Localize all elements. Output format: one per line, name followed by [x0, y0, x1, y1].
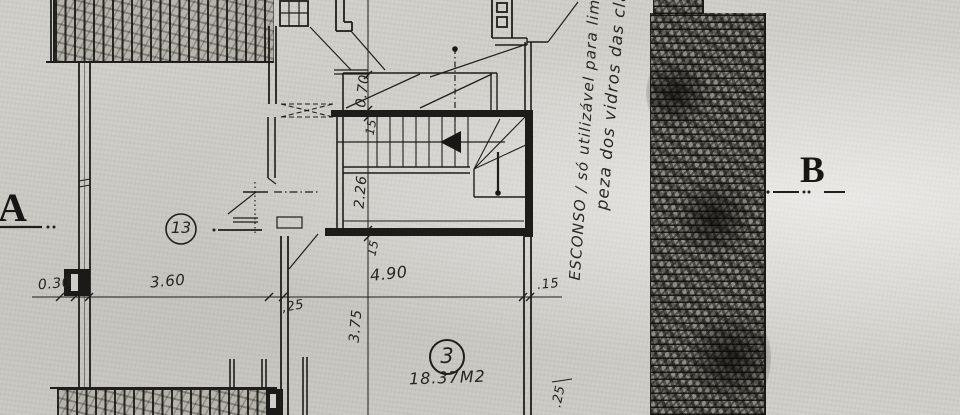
dim-0-30: 0.30 — [37, 276, 71, 293]
floor-plan-linework — [0, 0, 960, 415]
floor-plan-scan: A B 13 3 18.37M2 0.30 3.60 ,25 4.90 .15 … — [0, 0, 960, 415]
dim-15-wall: .15 — [536, 277, 559, 292]
section-lines — [0, 182, 845, 234]
room-3-number: 3 — [431, 346, 463, 367]
dim-3-75: 3.75 — [347, 303, 365, 348]
dashed-sill — [281, 104, 333, 117]
stair-direction-arrow — [440, 131, 461, 153]
walls — [46, 0, 578, 415]
dim-4-90: 4.90 — [369, 264, 408, 284]
winder-steps — [474, 117, 528, 169]
section-marker-a: A — [0, 188, 28, 228]
section-marker-b: B — [800, 152, 826, 189]
dim-3-60: 3.60 — [149, 272, 186, 290]
dim-25-wall: ,25 — [281, 298, 305, 315]
chimney — [430, 0, 578, 77]
room-3-area: 18.37M2 — [409, 369, 486, 388]
flue-shaft — [280, 1, 308, 26]
dim-2-26: 2.26 — [352, 169, 370, 214]
room-13-number: 13 — [165, 220, 197, 236]
